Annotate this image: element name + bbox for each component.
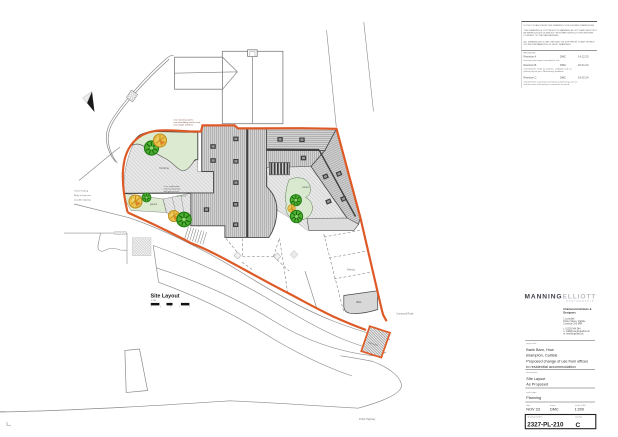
svg-text:BE REPRODUCED IN WHOLE OR IN P: BE REPRODUCED IN WHOLE OR IN PART WITHOU…	[524, 32, 594, 35]
svg-text:PARTNERSHIP: PARTNERSHIP	[566, 300, 594, 303]
svg-text:DMC: DMC	[560, 55, 566, 59]
svg-text:Proposed change of use from of: Proposed change of use from offices	[526, 359, 588, 363]
svg-text:MANNINGELLIOTT: MANNINGELLIOTT	[525, 293, 597, 300]
svg-text:ALL DIMENSIONS TO BE CHECKED O: ALL DIMENSIONS TO BE CHECKED ON SITE PRI…	[524, 41, 595, 44]
svg-text:CONSENT OF THE PARTNERSHIP.: CONSENT OF THE PARTNERSHIP.	[524, 34, 560, 37]
svg-text:work stage: work stage	[526, 391, 537, 394]
svg-text:new retaining wall to: new retaining wall to	[174, 118, 195, 121]
svg-text:Brampton, Carlisle: Brampton, Carlisle	[526, 354, 557, 358]
svg-text:Parking: Parking	[347, 269, 356, 272]
svg-text:THIS DRAWING IS COPYRIGHT OF M: THIS DRAWING IS COPYRIGHT OF MANNING ELL…	[524, 29, 598, 32]
svg-text:drawing number: drawing number	[528, 416, 543, 419]
svg-text:As Proposed: As Proposed	[526, 383, 548, 387]
svg-text:Visitor Parking: Visitor Parking	[74, 190, 89, 193]
svg-text:with gate access: with gate access	[164, 190, 179, 193]
svg-text:rear of building (south east): rear of building (south east)	[174, 121, 201, 124]
svg-text:Right of way over: Right of way over	[74, 194, 91, 197]
svg-text:REVISIONS: REVISIONS	[524, 53, 536, 55]
svg-text:Site Layout: Site Layout	[526, 377, 546, 381]
svg-text:Revision B: Revision B	[524, 63, 537, 67]
svg-text:1:200: 1:200	[575, 407, 585, 411]
svg-text:parking layout per LPA plannin: parking layout per LPA planning feedback	[524, 70, 565, 73]
svg-text:and bin store relocated per co: and bin store relocated per comments rec…	[524, 83, 570, 86]
svg-text:DMC: DMC	[550, 407, 559, 411]
svg-text:Bins: Bins	[357, 301, 363, 304]
svg-text:OR THE PREPARATION OF SHOP DRA: OR THE PREPARATION OF SHOP DRAWINGS.	[524, 43, 572, 46]
svg-text:Public Highway: Public Highway	[359, 418, 376, 421]
svg-text:Garden: Garden	[302, 186, 310, 189]
svg-text:14.12.23: 14.12.23	[578, 55, 589, 59]
svg-text:DMC: DMC	[560, 76, 566, 80]
svg-text:Revision A: Revision A	[524, 55, 537, 59]
svg-text:first floor plan layout amende: first floor plan layout amended to suit	[524, 59, 560, 62]
svg-text:22.01.24: 22.01.24	[578, 63, 589, 67]
svg-text:Designers: Designers	[563, 310, 576, 314]
svg-text:NOV 23: NOV 23	[526, 407, 540, 411]
svg-text:garden: garden	[150, 203, 158, 206]
svg-text:amendments made to windows, ro: amendments made to windows, rooflights a…	[524, 68, 572, 71]
svg-text:1:200: 1:200	[151, 300, 157, 302]
svg-text:Parking: Parking	[160, 166, 170, 170]
svg-text:DO NOT SCALE FROM THIS DRAWING: DO NOT SCALE FROM THIS DRAWING. USE FIGU…	[524, 24, 596, 27]
svg-text:project title: project title	[526, 342, 537, 345]
svg-text:w: manningelliott.uk: w: manningelliott.uk	[563, 333, 584, 336]
svg-text:Bank Barn, How: Bank Barn, How	[526, 348, 554, 352]
svg-text:C: C	[576, 422, 581, 429]
svg-text:DMC: DMC	[560, 63, 566, 67]
svg-text:amendments to parking, boundar: amendments to parking, boundary and driv…	[524, 80, 578, 83]
svg-text:max height 1150mm: max height 1150mm	[174, 124, 194, 127]
svg-text:Revision C: Revision C	[524, 76, 537, 80]
svg-text:Unnamed Road: Unnamed Road	[397, 313, 414, 316]
svg-text:to public highway: to public highway	[74, 199, 92, 202]
svg-text:19.02.24: 19.02.24	[578, 76, 589, 80]
svg-text:Cumbria CA3 8RR: Cumbria CA3 8RR	[563, 323, 582, 326]
svg-text:2327-PL-210: 2327-PL-210	[527, 422, 564, 429]
svg-text:revision: revision	[575, 416, 583, 419]
svg-text:Site Layout: Site Layout	[151, 293, 180, 299]
svg-text:to residential accommodation: to residential accommodation	[526, 365, 575, 369]
svg-text:drawing title: drawing title	[526, 371, 538, 374]
svg-text:Planning: Planning	[526, 396, 541, 400]
svg-text:greenhouse: greenhouse	[177, 194, 187, 197]
